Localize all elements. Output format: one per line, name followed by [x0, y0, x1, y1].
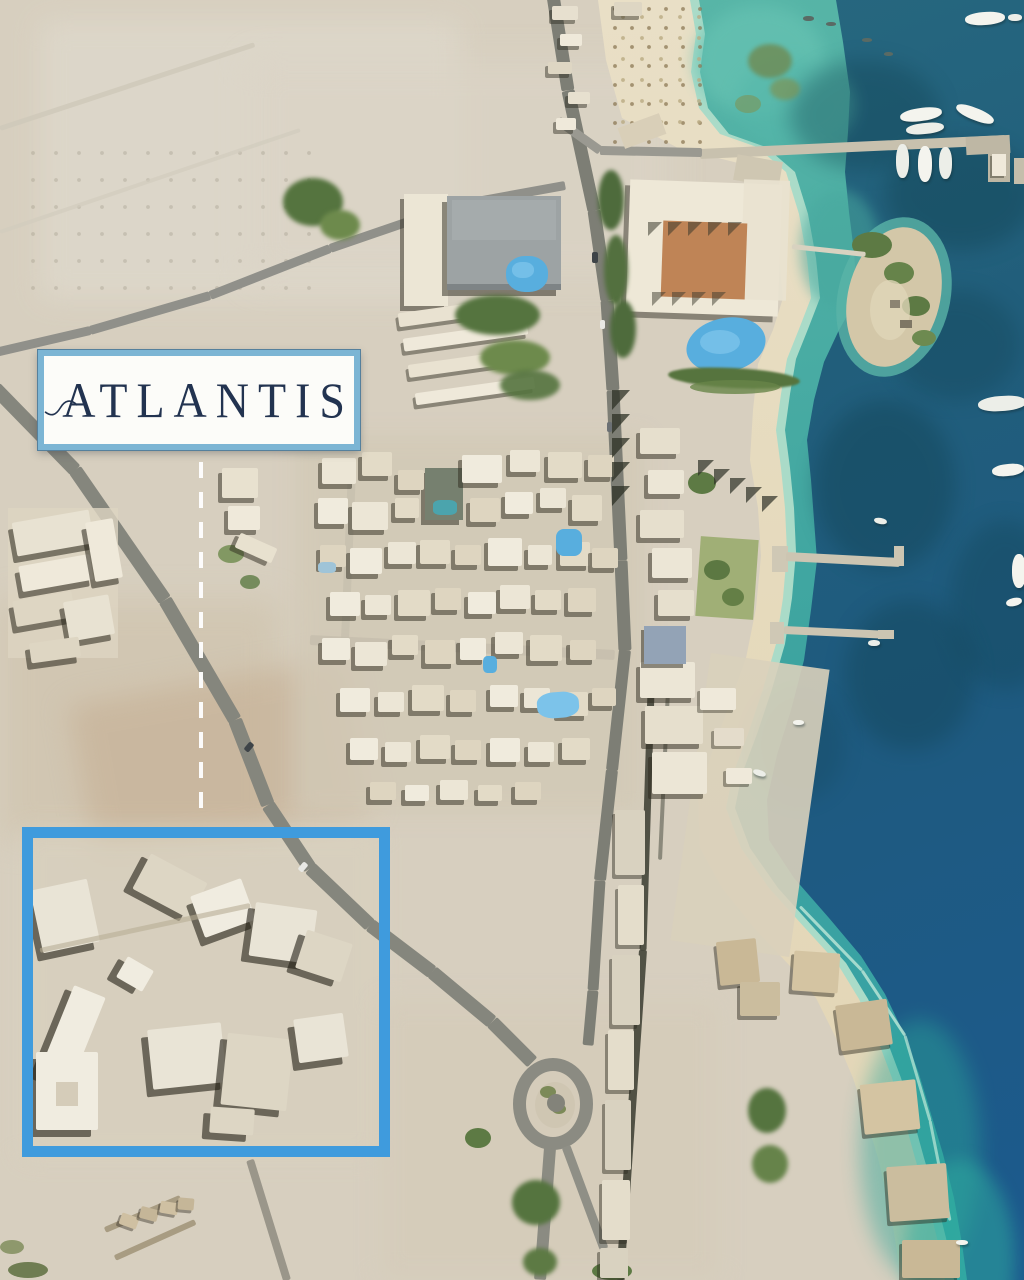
corner-scrub	[8, 1262, 48, 1278]
town-building-6	[588, 455, 614, 477]
main-road	[588, 880, 606, 991]
town-building-36	[495, 632, 523, 654]
boat-16	[956, 1240, 968, 1245]
beach-hut-3	[835, 999, 893, 1052]
south-green	[752, 1145, 788, 1183]
town-building-26	[435, 588, 461, 610]
town-green	[688, 472, 716, 494]
greenhouse-unit-2	[159, 1201, 179, 1216]
town-building-51	[490, 738, 520, 762]
small-dark-boat-0	[803, 16, 814, 21]
midleft-resort-building-3	[63, 594, 115, 641]
boat-15	[868, 640, 880, 646]
south-green	[512, 1180, 560, 1225]
town-building-22	[592, 548, 618, 568]
road-strip-building-2	[612, 955, 640, 1025]
town-building-53	[562, 738, 590, 760]
tree-line	[455, 295, 540, 335]
roundabout-center	[547, 1094, 565, 1112]
town-building-58	[515, 782, 541, 800]
map-canvas[interactable]: ATLANTIS	[0, 0, 1024, 1280]
road-strip-building-4	[605, 1100, 631, 1170]
scrub	[240, 575, 260, 589]
car-2	[607, 422, 612, 432]
lagoon-pool-light	[700, 330, 740, 354]
place-label: ATLANTIS	[62, 371, 354, 428]
pier-root-platform	[770, 622, 784, 644]
island-structure	[890, 300, 900, 308]
boat-7	[1008, 14, 1022, 21]
town-building-15	[350, 548, 382, 574]
roadside-building-3	[568, 92, 590, 104]
town-building-8	[352, 502, 388, 530]
town-building-52	[528, 742, 554, 762]
beach-hut-1	[792, 950, 841, 993]
south-green	[748, 1088, 786, 1133]
beach-hut-2	[740, 982, 780, 1016]
town-building-16	[388, 542, 416, 564]
road-strip-building-5	[602, 1180, 630, 1240]
south-green	[523, 1248, 557, 1276]
east-road-building-5	[640, 662, 695, 698]
beach-hut-6	[902, 1240, 960, 1278]
lawn	[695, 536, 758, 620]
town-building-9	[395, 498, 419, 518]
island-sand-clearing	[870, 280, 910, 340]
town-building-1	[362, 452, 392, 476]
town-building-50	[455, 740, 481, 760]
tree-line	[480, 340, 550, 375]
town-building-19	[488, 538, 522, 566]
highlight-box	[22, 827, 390, 1157]
small-building-1	[228, 506, 260, 530]
town-building-11	[505, 492, 533, 514]
esplanade-structure-2	[726, 768, 752, 784]
pool	[556, 529, 582, 556]
pool	[318, 562, 336, 573]
town-building-7	[318, 498, 348, 524]
east-road-building-1	[648, 470, 684, 494]
east-road-building-2	[640, 510, 684, 538]
small-dark-boat-1	[826, 22, 836, 26]
town-building-30	[568, 588, 596, 612]
roadside-building-2	[548, 62, 572, 74]
town-building-40	[378, 692, 404, 712]
town-building-32	[355, 642, 387, 666]
town-building-5	[548, 452, 582, 478]
shore-green	[735, 95, 761, 113]
palm-row	[690, 380, 780, 394]
boat-14	[793, 720, 804, 725]
road-strip-building-1	[618, 885, 644, 945]
pier-building	[992, 154, 1006, 176]
courtyard-hotel-east-wing	[740, 179, 790, 301]
road-strip-building-6	[600, 1248, 628, 1278]
town-building-38	[570, 640, 596, 660]
roadside-building-0	[552, 6, 578, 20]
small-dark-boat-3	[884, 52, 893, 56]
beach-hut-4	[860, 1079, 921, 1135]
town-building-33	[392, 635, 418, 655]
pier-pontoon	[1014, 158, 1024, 184]
water-dark-patch	[815, 400, 955, 570]
beach-hut-5	[886, 1163, 950, 1222]
island-structure	[900, 320, 912, 328]
town-building-47	[350, 738, 378, 760]
town-building-17	[420, 540, 450, 564]
pool	[433, 500, 457, 515]
town-building-27	[468, 592, 496, 614]
road-strip-building-0	[615, 810, 645, 875]
dock-pier-cap	[894, 546, 904, 566]
road-tree-line	[604, 235, 628, 305]
place-label-box: ATLANTIS	[38, 350, 360, 450]
town-building-20	[528, 545, 552, 565]
town-building-23	[330, 592, 360, 616]
hotel-west-wing	[404, 194, 448, 306]
pool	[483, 656, 497, 673]
town-building-49	[420, 735, 450, 759]
town-building-0	[322, 458, 356, 484]
car-0	[592, 252, 598, 263]
roadside-building-4	[556, 118, 576, 130]
town-building-25	[398, 590, 430, 616]
beach-umbrella-dots	[620, 14, 708, 138]
east-road-building-6	[645, 706, 703, 744]
corner-scrub	[0, 1240, 24, 1254]
east-road-building-3	[652, 548, 692, 578]
sawtooth-shadow	[714, 469, 730, 485]
road-strip-building-3	[608, 1030, 634, 1090]
east-road-building-0	[640, 428, 680, 454]
hotel-courtyard	[661, 221, 748, 300]
town-building-12	[540, 488, 566, 508]
town-building-13	[572, 495, 602, 521]
gray-roof-highlight	[452, 200, 556, 240]
boat-8	[1012, 554, 1024, 588]
east-road-building-4	[658, 590, 694, 616]
coast-road	[600, 146, 702, 157]
town-building-39	[340, 688, 370, 712]
sawtooth-shadow	[730, 478, 746, 494]
greenhouse-unit-3	[178, 1197, 195, 1210]
esplanade-structure-1	[714, 728, 744, 746]
desert-scrub-dots	[30, 150, 330, 310]
bottom-left-road	[246, 1159, 291, 1280]
town-building-46	[592, 688, 616, 706]
small-dark-boat-2	[862, 38, 872, 42]
town-building-35	[460, 638, 486, 660]
town-building-34	[425, 640, 455, 664]
town-building-37	[530, 635, 562, 661]
tree-line	[320, 210, 360, 240]
town-building-3	[462, 455, 502, 483]
town-building-31	[322, 638, 350, 660]
town-building-18	[455, 545, 481, 565]
town-building-2	[398, 470, 424, 490]
town-building-43	[490, 685, 518, 707]
road-tree-line	[610, 300, 636, 358]
blueroof-building	[644, 626, 686, 664]
boat-3	[896, 144, 909, 178]
roadside-building-1	[560, 34, 582, 46]
car-1	[600, 320, 605, 329]
small-building-0	[222, 468, 258, 498]
town-building-57	[478, 785, 502, 801]
town-building-56	[440, 780, 468, 800]
island-vegetation	[912, 330, 936, 346]
road-tree-line	[598, 170, 624, 230]
lawn-trees	[704, 560, 730, 580]
town-building-42	[450, 690, 476, 712]
water-dark-patch	[845, 600, 975, 750]
town-building-29	[535, 590, 561, 610]
beach-hut-0	[716, 938, 760, 986]
town-building-48	[385, 742, 411, 762]
dock-pier-cap	[878, 630, 894, 639]
shore-green	[748, 44, 792, 78]
boat-4	[918, 146, 932, 182]
esplanade-structure-0	[700, 688, 736, 710]
resort-pool-light	[512, 262, 534, 278]
tree-line	[500, 370, 560, 400]
town-building-24	[365, 595, 391, 615]
east-road-building-7	[652, 752, 707, 794]
town-building-4	[510, 450, 540, 472]
town-building-54	[370, 782, 396, 800]
town-building-10	[470, 498, 500, 522]
town-building-41	[412, 685, 444, 711]
shore-green	[770, 78, 800, 100]
lawn-trees	[722, 588, 744, 606]
town-building-28	[500, 585, 530, 609]
boat-5	[939, 147, 952, 179]
roadside-building-5	[614, 2, 642, 16]
leader-dashed-line	[199, 462, 203, 820]
town-building-55	[405, 785, 429, 801]
south-green	[465, 1128, 491, 1148]
